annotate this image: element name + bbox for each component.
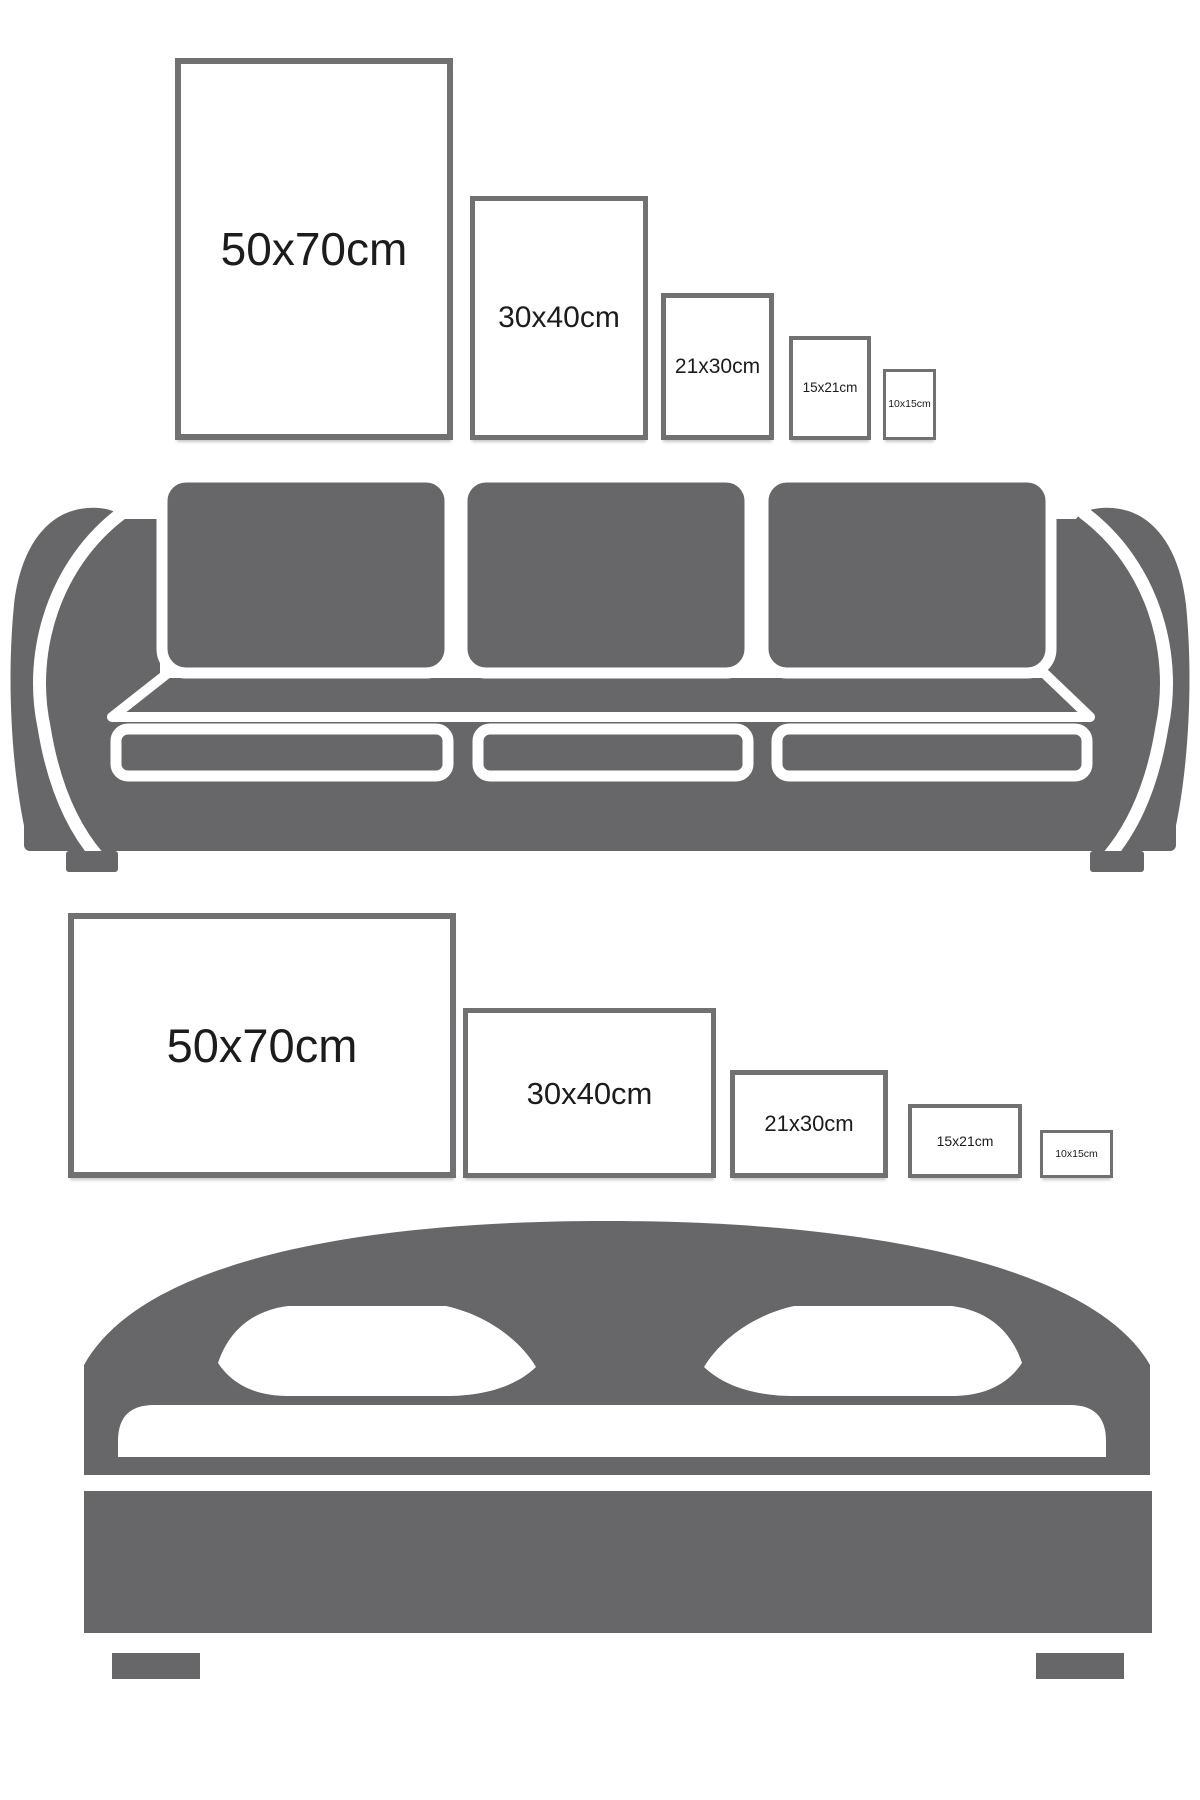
frame-portrait-21x30: 21x30cm <box>661 293 774 440</box>
frame-size-label: 15x21cm <box>937 1134 994 1148</box>
frame-portrait-50x70: 50x70cm <box>175 58 453 440</box>
frame-portrait-10x15: 10x15cm <box>883 369 936 440</box>
frame-landscape-30x40: 30x40cm <box>463 1008 716 1178</box>
frame-size-label: 21x30cm <box>675 356 760 377</box>
sofa-icon <box>0 455 1200 875</box>
frame-landscape-10x15: 10x15cm <box>1040 1130 1113 1178</box>
frame-size-label: 30x40cm <box>498 303 620 333</box>
frame-landscape-15x21: 15x21cm <box>908 1104 1022 1178</box>
bed-icon <box>0 1195 1200 1695</box>
frame-size-label: 15x21cm <box>803 381 858 395</box>
frame-landscape-21x30: 21x30cm <box>730 1070 888 1178</box>
frame-landscape-50x70: 50x70cm <box>68 913 456 1178</box>
frame-portrait-30x40: 30x40cm <box>470 196 648 440</box>
frame-portrait-15x21: 15x21cm <box>789 336 871 440</box>
frame-size-label: 50x70cm <box>167 1022 358 1069</box>
frame-size-label: 21x30cm <box>764 1113 853 1135</box>
poster-size-guide: 50x70cm 30x40cm 21x30cm 15x21cm 10x15cm <box>0 0 1200 1800</box>
frame-size-label: 30x40cm <box>527 1078 653 1109</box>
frame-size-label: 10x15cm <box>1055 1149 1098 1160</box>
frame-size-label: 10x15cm <box>888 399 931 410</box>
frame-size-label: 50x70cm <box>221 226 408 272</box>
